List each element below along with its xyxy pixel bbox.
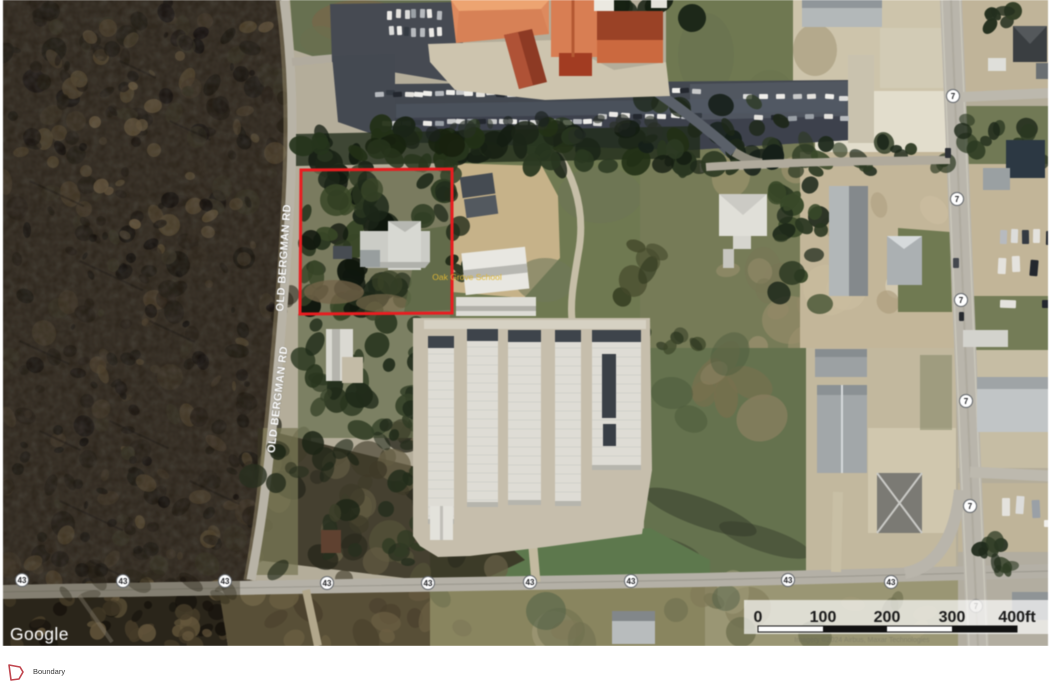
- svg-text:43: 43: [424, 579, 433, 588]
- svg-text:43: 43: [323, 579, 332, 588]
- svg-text:Google: Google: [10, 624, 69, 644]
- svg-text:7: 7: [959, 296, 964, 305]
- svg-text:200: 200: [874, 609, 901, 626]
- svg-text:100: 100: [810, 609, 837, 626]
- svg-text:300: 300: [939, 609, 966, 626]
- svg-text:7: 7: [955, 195, 960, 204]
- svg-text:0: 0: [754, 609, 763, 626]
- svg-text:43: 43: [119, 577, 128, 586]
- svg-text:400ft: 400ft: [998, 609, 1036, 626]
- svg-text:43: 43: [18, 576, 27, 585]
- svg-text:43: 43: [887, 578, 896, 587]
- svg-text:43: 43: [526, 578, 535, 587]
- svg-text:43: 43: [627, 577, 636, 586]
- svg-text:7: 7: [964, 397, 969, 406]
- svg-text:7: 7: [951, 92, 956, 101]
- svg-text:7: 7: [968, 502, 973, 511]
- svg-text:Imagery ©2024 Airbus, Maxar Te: Imagery ©2024 Airbus, Maxar Technologies: [794, 636, 930, 644]
- svg-text:43: 43: [221, 577, 230, 586]
- svg-text:Oak Grove School: Oak Grove School: [432, 272, 502, 282]
- svg-text:43: 43: [784, 576, 793, 585]
